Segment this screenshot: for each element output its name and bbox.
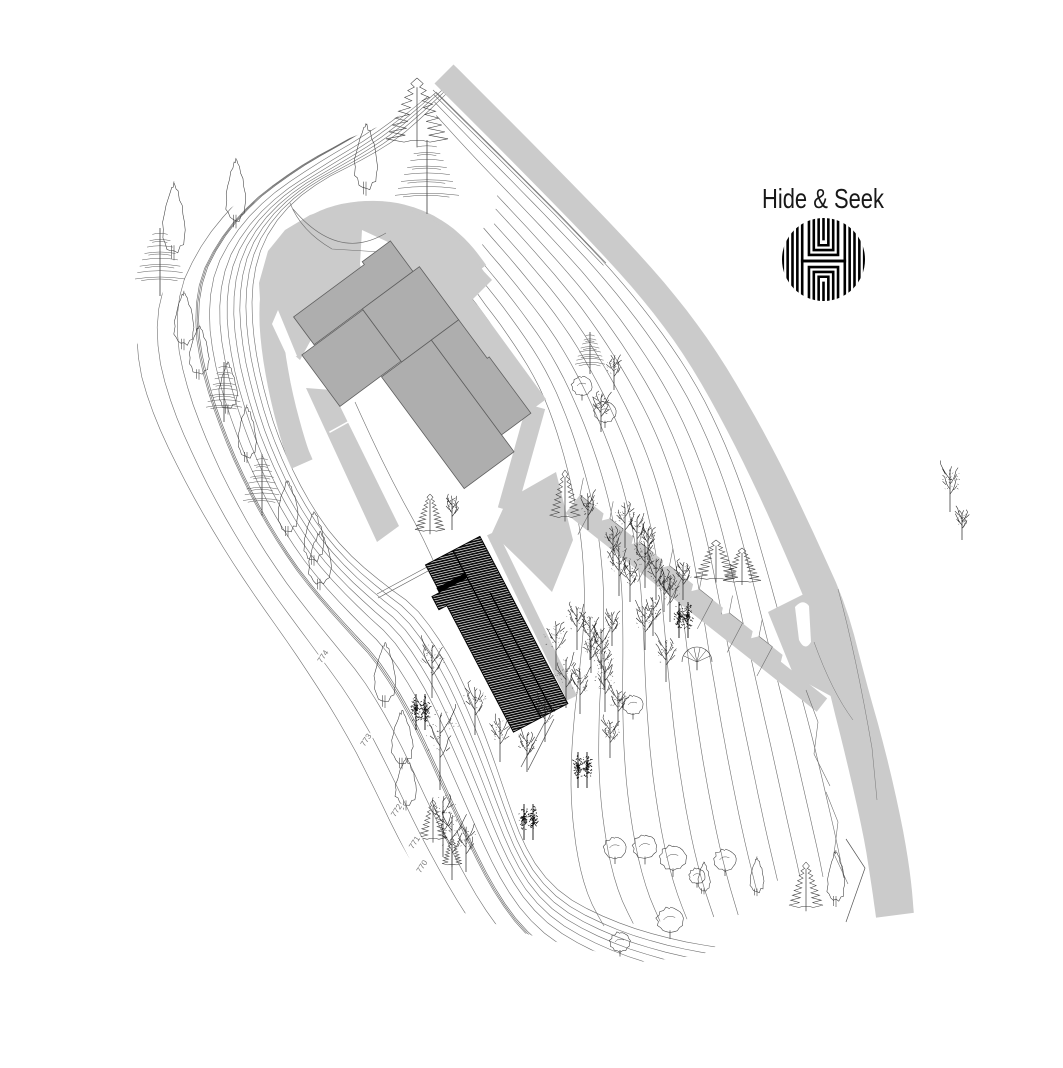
- svg-text:Hide & Seek: Hide & Seek: [762, 183, 884, 214]
